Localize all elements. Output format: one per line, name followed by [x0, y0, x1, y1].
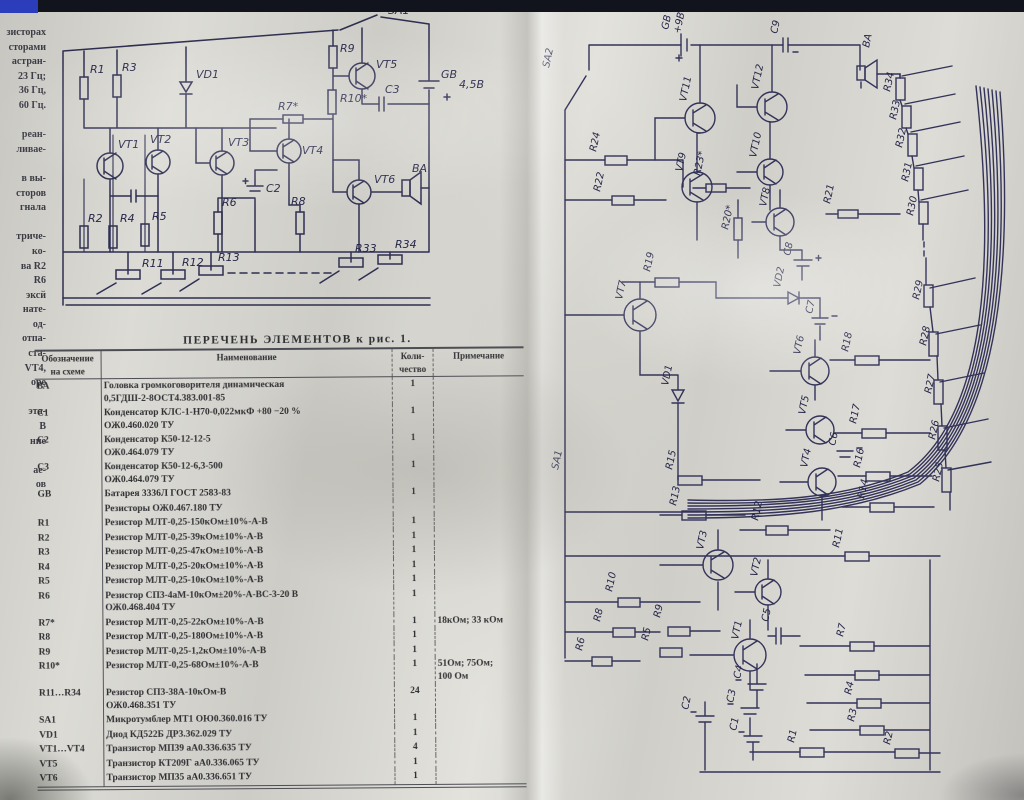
fig2-label-r15: R15 — [664, 449, 679, 471]
fig2-label-r28: R28 — [918, 325, 933, 347]
speaker-icon — [857, 66, 865, 80]
fig2-label-gb: GB — [660, 14, 674, 31]
fig1-label-r2: R2 — [88, 212, 103, 225]
fig2-label-vt1: VT1 — [730, 619, 745, 640]
fig2-label-c3: C3 — [725, 688, 739, 703]
fig2-label-r2: R2 — [882, 730, 896, 745]
fig2-label-r32: R32 — [894, 127, 909, 149]
table-row: C2Конденсатор К50-12-12-5ОЖ0.464.079 ТУ1 — [35, 430, 524, 460]
header-qty: Коли- чество — [392, 348, 433, 377]
fig2-label-vt7: VT7 — [614, 279, 629, 301]
header-note: Примечание — [433, 347, 524, 376]
fig2-label-r23: R23* — [692, 150, 708, 176]
parts-table-body: ВАГоловка громкоговорителя динамическая0… — [35, 376, 527, 788]
fig2-label-r33: R33 — [888, 99, 903, 121]
fig1-label-r11: R11 — [142, 257, 164, 270]
fig1-label-r4: R4 — [120, 212, 135, 225]
fig2-label-r19: R19 — [642, 251, 657, 273]
fig2-schematic: SA2 SA1 GB +9В C9 ВА VT11 VT12 VT9 VT10 … — [530, 0, 1024, 800]
table-row: C1Конденсатор КЛС-1-Н70-0,022мкФ +80 −20… — [35, 403, 524, 433]
fig2-label-r12: R12 — [750, 500, 765, 522]
fig1-label-r33: R33 — [355, 242, 377, 255]
fig2-label-c8: C8 — [782, 241, 796, 256]
margin-text-line — [0, 114, 46, 129]
fig2-label-vd1: VD1 — [660, 364, 675, 387]
header-designator: Обозначение на схеме — [35, 350, 102, 379]
margin-text-line: сторов — [0, 187, 46, 202]
fig1-label-vt4: VT4 — [302, 144, 323, 157]
fig2-label-r24: R24 — [588, 131, 603, 153]
fig2-label-r30: R30 — [905, 195, 920, 217]
fig1-label-r34: R34 — [395, 238, 417, 251]
fig1-label-r7: R7* — [278, 100, 299, 113]
margin-text-line: в вы- — [0, 172, 46, 187]
fig2-bundle-wires — [688, 86, 1005, 518]
fig2-label-c7: C7 — [804, 299, 818, 315]
fig2-label-r21: R21 — [822, 183, 837, 205]
fig1-label-c2: C2 — [266, 182, 281, 195]
photo-of-schematic-sheet: { "left_margin": { "lines": ["зисторах",… — [0, 0, 1024, 800]
fig1-label-r9: R9 — [340, 42, 355, 55]
fig2-label-r6: R6 — [574, 636, 588, 651]
fig2-label-r22: R22 — [592, 171, 607, 193]
fig2-label-r17: R17 — [848, 402, 863, 424]
fig1-label-vt3: VT3 — [228, 136, 249, 149]
fig2-label-r16: R16 — [852, 447, 867, 469]
margin-text-line: 23 Гц; — [0, 70, 46, 85]
table-row: R11…R34Резистор СП3-38А-10кОм-ВОЖ0.468.3… — [37, 683, 526, 713]
margin-text-line: зисторах — [0, 26, 46, 41]
fig2-label-vt5: VT5 — [797, 394, 812, 415]
photo-top-band — [0, 0, 1024, 12]
parts-table: Обозначение на схеме Наименование Коли- … — [35, 346, 527, 790]
fig1-label-vt1: VT1 — [118, 138, 139, 151]
margin-text-line: ливае- — [0, 143, 46, 158]
margin-text-line: R6 — [0, 274, 46, 289]
fig2-label-vt11: VT11 — [678, 75, 694, 102]
table-row: VT6Транзистор МП35 аА0.336.651 ТУ1 — [37, 768, 526, 788]
fig1-label-r6: R6 — [222, 196, 237, 209]
fig2-label-r18: R18 — [840, 331, 855, 353]
fig1-label-vt6: VT6 — [374, 173, 395, 186]
fig1-label-r13: R13 — [218, 251, 240, 264]
margin-text-line: эксй — [0, 289, 46, 304]
fig2-label-vt10: VT10 — [748, 131, 764, 158]
parts-table-header-row: Обозначение на схеме Наименование Коли- … — [35, 347, 524, 379]
fig2-label-r5: R5 — [640, 626, 654, 641]
fig2-label-r8: R8 — [592, 607, 606, 622]
fig2-label-vt4: VT4 — [799, 447, 814, 468]
margin-text-line — [0, 216, 46, 231]
fig2-label-c4: C4 — [732, 664, 746, 679]
fig2-label-sa2: SA2 — [541, 47, 556, 68]
table-row: ВАГоловка громкоговорителя динамическая0… — [35, 376, 524, 407]
table-row: R10*Резистор МЛТ-0,25-68Ом±10%-А-В151Ом;… — [37, 656, 526, 686]
diode-vd1-symbol — [180, 82, 192, 94]
margin-text-line: астран- — [0, 55, 46, 70]
fig2-label-r1: R1 — [786, 728, 800, 743]
fig2-label-r9: R9 — [652, 603, 666, 618]
fig1-label-r12: R12 — [182, 256, 204, 269]
fig1-label-vt5: VT5 — [376, 58, 397, 71]
margin-text-line: триче- — [0, 230, 46, 245]
margin-text-line: сторами — [0, 41, 46, 56]
fig2-label-r27: R27 — [923, 372, 938, 394]
margin-text-line: ко- — [0, 245, 46, 260]
fig2-label-c5: C5 — [760, 607, 774, 622]
fig2-label-sa1: SA1 — [550, 449, 565, 470]
fig2-label-vt3: VT3 — [695, 529, 710, 550]
margin-text-line: гнала — [0, 201, 46, 216]
fig1-label-c3: C3 — [385, 83, 400, 96]
fig2-label-vd2: VD2 — [772, 266, 787, 289]
parts-list: ПЕРЕЧЕНЬ ЭЛЕМЕНТОВ к рис. 1. Обозначение… — [34, 332, 523, 790]
fig1-label-gb-voltage: 4,5В — [459, 78, 484, 91]
fig2-label-ba: ВА — [861, 33, 875, 49]
margin-text-line: 36 Гц, — [0, 84, 46, 99]
diode-vd1-symbol — [672, 390, 684, 403]
fig2-label-r7: R7 — [835, 622, 849, 638]
fig1-label-r10: R10* — [340, 92, 368, 105]
fig1-label-gb: GB — [441, 68, 457, 81]
table-row: C3Конденсатор К50-12-6,3-500ОЖ0.464.079 … — [35, 457, 524, 487]
fig2-label-c6: C6 — [827, 431, 841, 446]
fig2-label-c9: C9 — [769, 19, 783, 34]
photo-blue-corner — [0, 0, 38, 13]
fig2-labels: SA2 SA1 GB +9В C9 ВА VT11 VT12 VT9 VT10 … — [541, 11, 946, 746]
fig2-label-r14: R14 — [856, 478, 871, 500]
margin-text-line — [0, 157, 46, 172]
fig2-label-r13: R13 — [668, 485, 683, 507]
margin-text-line: ва R2 — [0, 260, 46, 275]
fig1-label-r1: R1 — [90, 63, 105, 76]
fig2-wires — [565, 34, 991, 772]
speaker-icon — [402, 180, 410, 196]
fig2-label-r31: R31 — [900, 161, 915, 183]
fig1-label-r8: R8 — [291, 195, 306, 208]
margin-text-line: 60 Гц. — [0, 99, 46, 114]
fig2-label-r3: R3 — [846, 707, 860, 722]
fig2-label-vt6: VT6 — [792, 334, 807, 355]
fig2-label-vt8: VT8 — [758, 186, 773, 207]
fig1-label-vd1: VD1 — [196, 68, 219, 81]
fig2-label-vt2: VT2 — [749, 556, 764, 577]
fig2-components — [592, 60, 951, 758]
margin-text-line: реан- — [0, 128, 46, 143]
fig1-label-ba: ВА — [412, 162, 427, 175]
parts-list-title: ПЕРЕЧЕНЬ ЭЛЕМЕНТОВ к рис. 1. — [34, 332, 520, 347]
fig2-label-r10: R10 — [604, 571, 619, 593]
fig1-schematic: SA1 GB 4,5В R1 R3 VD1 VT1 VT2 VT3 VT4 VT… — [55, 0, 535, 335]
margin-text-line: од- — [0, 318, 46, 333]
fig2-label-r11: R11 — [831, 527, 846, 549]
fig1-label-vt2: VT2 — [150, 133, 171, 146]
fig1-label-r5: R5 — [152, 210, 167, 223]
fig1-label-r3: R3 — [122, 61, 137, 74]
fig2-label-c2: C2 — [680, 695, 694, 710]
fig2-label-c1: C1 — [728, 716, 742, 731]
fig2-label-vt9: VT9 — [674, 151, 689, 172]
diode-vd2-symbol — [788, 292, 799, 304]
fig2-label-gb-voltage: +9В — [672, 11, 687, 35]
margin-text-line: нате- — [0, 303, 46, 318]
table-row: R6Резистор СП3-4аМ-10кОм±20%-А-ВС-3-20 В… — [36, 586, 525, 616]
fig2-label-r4: R4 — [843, 680, 857, 695]
header-name: Наименование — [101, 348, 392, 379]
fig2-label-vt12: VT12 — [750, 63, 766, 90]
